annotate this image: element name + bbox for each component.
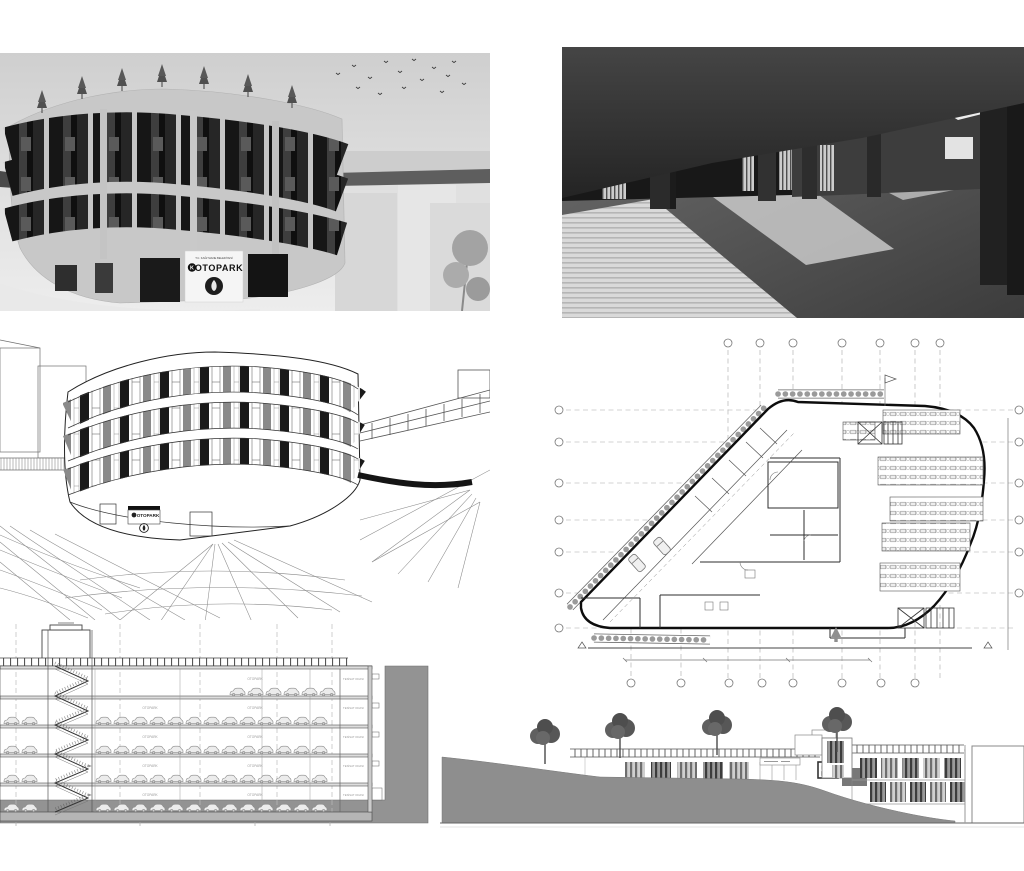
panel-interior-render [562,47,1024,318]
panel-wireframe-drawing: OTOPARK [0,330,490,620]
sign-title-text: OTOPARK [195,263,243,273]
svg-text:TESİSAT ODASI: TESİSAT ODASI [343,676,364,681]
adjacent-building [972,746,1024,823]
svg-text:TESİSAT ODASI: TESİSAT ODASI [343,705,364,710]
wireframe-sign-text: OTOPARK [137,513,160,518]
svg-text:OTOPARK: OTOPARK [247,677,263,681]
svg-text:OTOPARK: OTOPARK [142,735,158,739]
sign-logo-letter: K [190,265,194,271]
entrance-sign: T.C. KAĞITHANE BELEDİYESİ K OTOPARK [185,251,243,302]
svg-text:OTOPARK: OTOPARK [142,793,158,797]
sign-logo [205,277,223,295]
presentation-board: T.C. KAĞITHANE BELEDİYESİ K OTOPARK [0,0,1024,871]
svg-text:OTOPARK: OTOPARK [247,735,263,739]
svg-text:TESİSAT ODASI: TESİSAT ODASI [343,763,364,768]
svg-text:OTOPARK: OTOPARK [247,764,263,768]
panel-section-drawing: OTOPARK OTOPARK OTOPARK OTOPARK OTOPARK … [0,622,440,827]
svg-text:OTOPARK: OTOPARK [142,764,158,768]
svg-text:TESİSAT ODASI: TESİSAT ODASI [343,792,364,797]
panel-floor-plan [540,330,1024,690]
svg-text:OTOPARK: OTOPARK [247,706,263,710]
panel-exterior-render: T.C. KAĞITHANE BELEDİYESİ K OTOPARK [0,53,490,311]
svg-text:OTOPARK: OTOPARK [142,706,158,710]
panel-elevation-drawing [440,700,1024,871]
svg-text:OTOPARK: OTOPARK [247,793,263,797]
svg-text:TESİSAT ODASI: TESİSAT ODASI [343,734,364,739]
